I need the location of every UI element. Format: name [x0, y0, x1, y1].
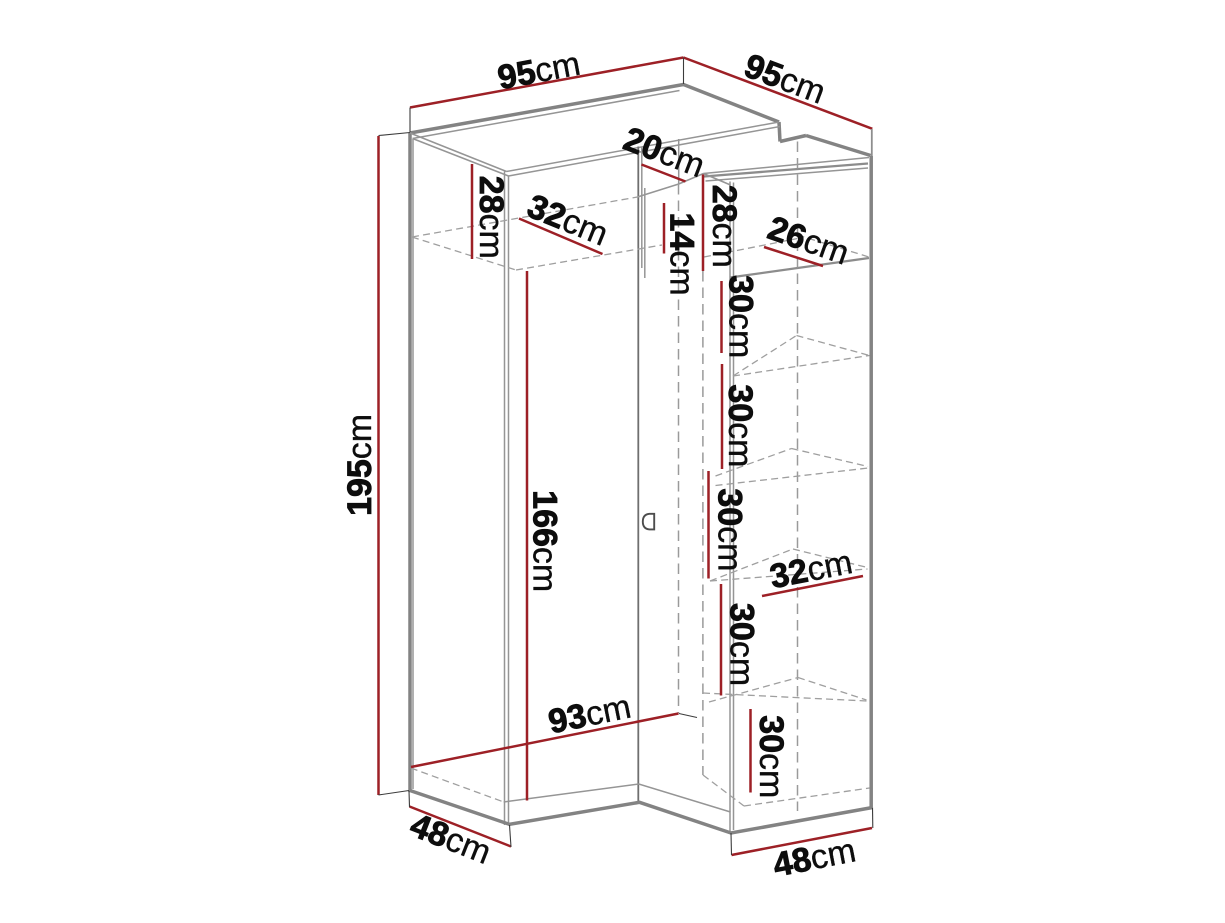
svg-text:28cm: 28cm	[705, 185, 743, 268]
svg-text:166cm: 166cm	[526, 490, 564, 592]
svg-text:30cm: 30cm	[711, 488, 749, 571]
svg-text:30cm: 30cm	[752, 715, 790, 798]
svg-text:14cm: 14cm	[662, 213, 700, 296]
svg-text:30cm: 30cm	[721, 275, 759, 358]
svg-text:30cm: 30cm	[721, 384, 759, 467]
svg-text:195cm: 195cm	[341, 414, 379, 516]
svg-text:28cm: 28cm	[472, 176, 510, 259]
svg-text:30cm: 30cm	[722, 603, 760, 686]
